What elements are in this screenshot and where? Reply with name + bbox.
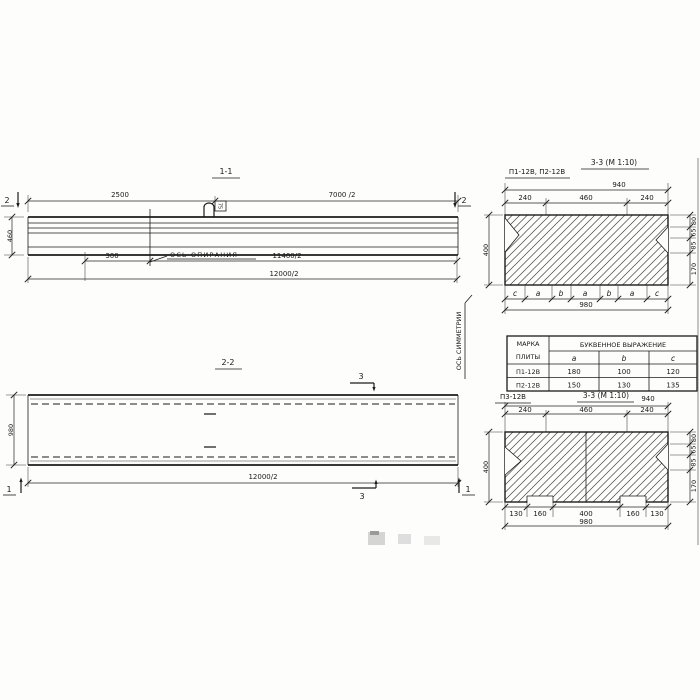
table-row: П2-12В 150 130 135 (516, 382, 680, 390)
dim-85: 85 (690, 458, 698, 466)
svg-text:1: 1 (6, 485, 11, 494)
dim-65: 65 (690, 445, 698, 453)
dim-12000-2: 12000/2 (248, 473, 277, 481)
dim-80: 80 (690, 217, 698, 225)
bottom-notch-left (527, 496, 553, 504)
dim-980: 980 (7, 424, 15, 436)
dim-460: 460 (579, 406, 592, 414)
letter-a3: a (630, 289, 635, 298)
dim-980: 980 (579, 301, 592, 309)
dim-12000-2: 12000/2 (269, 270, 298, 278)
dim-85: 85 (690, 241, 698, 249)
cross-section-body (505, 215, 668, 285)
marks-table: МАРКА ПЛИТЫ БУКВЕННОЕ ВЫРАЖЕНИЕ a b c П1… (507, 336, 697, 391)
letter-b2: b (607, 289, 612, 298)
table-col-b: b (622, 354, 627, 363)
hook-position-dashes (204, 414, 216, 447)
section-1-1-title: 1-1 (219, 167, 232, 176)
plate-mark: П3-12В (500, 393, 526, 401)
letter-b1: b (559, 289, 564, 298)
hook-tag: 75 (217, 203, 223, 209)
dim-240-l: 240 (518, 194, 531, 202)
support-axis-callout: ОСЬ ОПИРАНИЯ (150, 251, 256, 262)
cut-marker-2-right: 2 (453, 192, 471, 208)
letter-c1: c (513, 289, 518, 298)
cut-marker-1-right: 1 (457, 478, 475, 496)
dimension-lines (6, 392, 461, 487)
table-header-group: БУКВЕННОЕ ВЫРАЖЕНИЕ (580, 341, 666, 349)
plate-marks: П1-12В, П2-12В (509, 168, 566, 176)
svg-text:2: 2 (4, 196, 9, 205)
dim-400-mid: 400 (579, 510, 592, 518)
dimension-lines (4, 195, 461, 283)
dim-460: 460 (579, 194, 592, 202)
plan-outline (28, 395, 458, 465)
dim-160-r: 160 (626, 510, 639, 518)
dim-130-l: 130 (509, 510, 522, 518)
dim-7000-2: 7000 /2 (329, 191, 356, 199)
section-3-3-top: П1-12В, П2-12В 3-3 (М 1:10) 940 240 460 … (482, 158, 698, 314)
dim-240-r: 240 (640, 406, 653, 414)
svg-text:1: 1 (465, 485, 470, 494)
dim-940: 940 (612, 181, 625, 189)
cut-marker-2-left: 2 (1, 192, 20, 208)
table-header-marka: МАРКА (516, 340, 540, 348)
dim-80: 80 (690, 434, 698, 442)
dim-400: 400 (482, 244, 490, 256)
symmetry-axis-callout: ОСЬ СИММЕТРИИ (455, 295, 472, 379)
letter-a1: a (536, 289, 541, 298)
dim-170: 170 (690, 480, 698, 492)
svg-text:3: 3 (358, 372, 363, 381)
section-title: 3-3 (М 1:10) (591, 158, 637, 167)
svg-text:150: 150 (567, 382, 580, 390)
table-col-a: a (572, 354, 577, 363)
bottom-notch-right (620, 496, 646, 504)
dim-height-460: 460 (6, 230, 14, 242)
slab-elevation (28, 209, 458, 266)
dim-2500: 2500 (111, 191, 129, 199)
svg-text:130: 130 (617, 382, 630, 390)
letter-c2: c (655, 289, 660, 298)
svg-text:100: 100 (617, 368, 630, 376)
table-col-c: c (671, 354, 676, 363)
svg-text:3: 3 (359, 492, 364, 501)
section-1-1: 1-1 75 2500 7000 /2 460 300 11400/2 120 (1, 167, 471, 283)
svg-text:135: 135 (666, 382, 679, 390)
svg-text:2: 2 (461, 196, 466, 205)
table-header-plity: ПЛИТЫ (516, 353, 541, 361)
dim-240-l: 240 (518, 406, 531, 414)
svg-text:120: 120 (666, 368, 679, 376)
drawing-sheet: 1-1 75 2500 7000 /2 460 300 11400/2 120 (0, 0, 700, 700)
cut-marker-3-top: 3 (350, 372, 376, 392)
dim-11400-2: 11400/2 (272, 252, 301, 260)
section-title: 3-3 (М 1:10) (583, 391, 629, 400)
letter-a2: a (583, 289, 588, 298)
dim-65: 65 (690, 228, 698, 236)
section-2-2-title: 2-2 (221, 358, 234, 367)
cut-marker-1-left: 1 (3, 478, 23, 496)
table-row: П1-12В 180 100 120 (516, 368, 680, 376)
cross-section-body (505, 432, 668, 504)
dim-170: 170 (690, 263, 698, 275)
dim-300: 300 (105, 252, 118, 260)
svg-text:П2-12В: П2-12В (516, 382, 540, 390)
dim-980: 980 (579, 518, 592, 526)
dim-940: 940 (641, 395, 654, 403)
dimension-lines-bottom: 130 160 400 160 130 980 (502, 503, 671, 530)
section-3-3-bottom: П3-12В 3-3 (М 1:10) 940 240 460 240 (482, 391, 698, 530)
section-2-2: 2-2 980 12000/2 3 3 1 (3, 295, 475, 501)
svg-text:180: 180 (567, 368, 580, 376)
svg-text:П1-12В: П1-12В (516, 368, 540, 376)
symmetry-axis-label: ОСЬ СИММЕТРИИ (455, 312, 463, 371)
dim-130-r: 130 (650, 510, 663, 518)
dim-160-l: 160 (533, 510, 546, 518)
support-axis-label: ОСЬ ОПИРАНИЯ (170, 251, 238, 259)
dim-400: 400 (482, 461, 490, 473)
letter-dimension-row: c a b a b a c 980 (502, 285, 671, 314)
technical-drawing: 1-1 75 2500 7000 /2 460 300 11400/2 120 (0, 0, 700, 700)
scan-smudges (368, 531, 440, 545)
dim-240-r: 240 (640, 194, 653, 202)
